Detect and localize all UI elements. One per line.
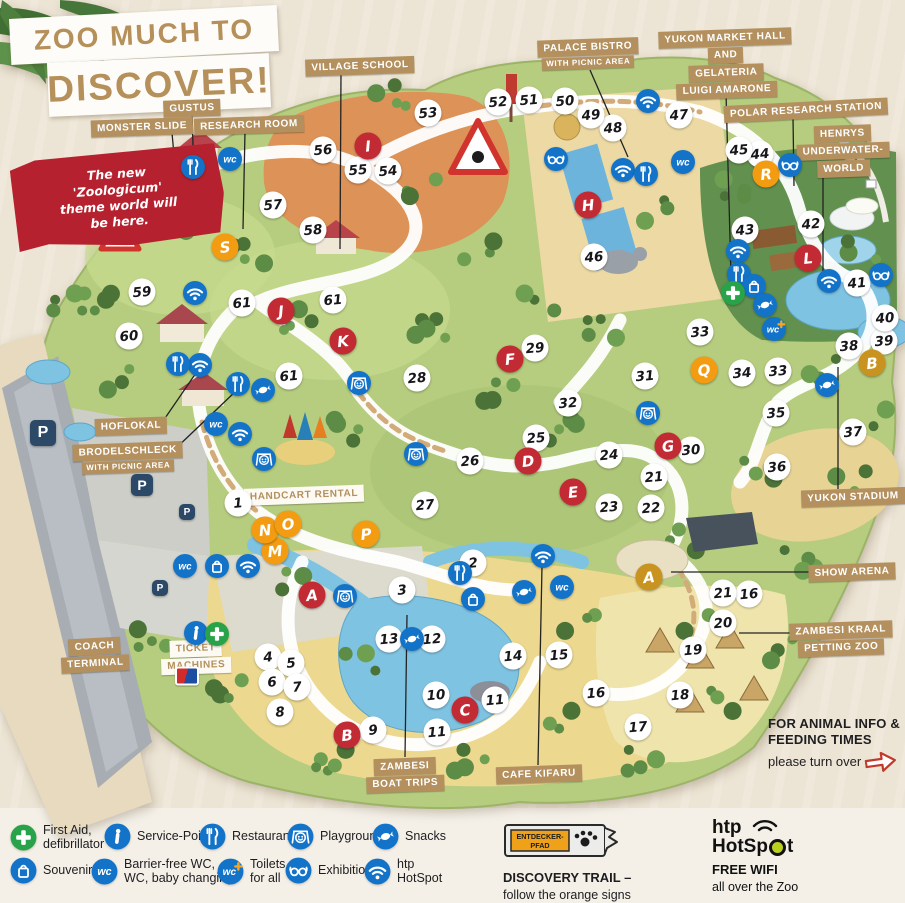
- discovery-trail-subtitle: follow the orange signs: [503, 888, 653, 903]
- hotspot-subtitle: all over the Zoo: [712, 880, 862, 895]
- wc-icon: [91, 858, 118, 885]
- wifi-icon: [364, 858, 391, 885]
- map-label-line: AND: [708, 46, 744, 64]
- map-label-line: GUSTUS: [163, 99, 221, 117]
- title-banner-line2: DISCOVER!: [47, 53, 271, 117]
- legend-item-label: Toiletsfor all: [250, 857, 285, 886]
- legend-item-wc-plus: Toiletsfor all: [217, 857, 285, 886]
- first-aid-icon: [10, 824, 37, 851]
- wifi-arcs-icon: [750, 818, 780, 834]
- map-label-line: UNDERWATER-: [796, 141, 889, 161]
- map-label-show-arena: SHOW ARENA: [808, 561, 896, 583]
- legend-item-label: htpHotSpot: [397, 857, 442, 886]
- map-label-line: COACH: [68, 637, 120, 656]
- map-label-line: YUKON STADIUM: [801, 487, 905, 507]
- map-label-line: PETTING ZOO: [798, 638, 885, 658]
- map-label-line: CAFE KIFARU: [496, 764, 582, 783]
- map-label-line: WITH PICNIC AREA: [542, 55, 634, 71]
- map-label-line: TERMINAL: [61, 654, 130, 674]
- map-label-ticket-machines: TICKETMACHINES: [160, 638, 231, 676]
- legend-item-playground: Playground: [287, 823, 383, 850]
- service-icon: [104, 823, 131, 850]
- map-label-henrys: HENRYSUNDERWATER-WORLD: [796, 123, 890, 180]
- legend-item-label: Restaurant: [232, 829, 293, 843]
- map-label-line: TICKET: [170, 639, 222, 657]
- exhibition-icon: [285, 857, 312, 884]
- map-label-palace-bistro: PALACE BISTROWITH PICNIC AREA: [537, 36, 639, 72]
- legend-item-snacks: Snacks: [372, 823, 446, 850]
- animal-info-line1: FOR ANIMAL INFO &: [768, 716, 903, 732]
- map-label-line: WITH PICNIC AREA: [82, 459, 174, 475]
- discovery-trail-sign: ENTDECKER- PFAD: [503, 820, 621, 860]
- map-label-village-school: VILLAGE SCHOOL: [305, 55, 415, 77]
- hotspot-brand-top: htp: [712, 818, 742, 837]
- map-label-zambesi-kraal: ZAMBESI KRAALPETTING ZOO: [789, 619, 893, 659]
- map-label-monster-slide: MONSTER SLIDE: [91, 116, 194, 138]
- legend-item-service: Service-Point: [104, 823, 211, 850]
- ribbon-line: be here.: [90, 212, 150, 232]
- map-label-brodelschleck: BRODELSCHLECKWITH PICNIC AREA: [72, 440, 183, 476]
- map-label-zambesi-boat-trips: ZAMBESIBOAT TRIPS: [365, 756, 444, 795]
- map-label-line: ZAMBESI: [374, 757, 436, 776]
- legend-item-label: First Aid,defibrillator: [43, 823, 104, 852]
- map-label-line: BOAT TRIPS: [366, 774, 444, 793]
- turn-over-text: please turn over: [768, 754, 861, 770]
- legend-item-label: Snacks: [405, 829, 446, 843]
- restaurant-icon: [199, 823, 226, 850]
- sign-text-line1: ENTDECKER-: [516, 832, 564, 841]
- map-label-line: MACHINES: [161, 656, 232, 675]
- discovery-trail-title: DISCOVERY TRAIL –: [503, 870, 653, 886]
- map-label-line: HANDCART RENTAL: [244, 485, 365, 506]
- map-label-hoflokal: HOFLOKAL: [95, 415, 168, 436]
- map-label-line: VILLAGE SCHOOL: [305, 56, 415, 76]
- snacks-icon: [372, 823, 399, 850]
- discovery-trail-legend: ENTDECKER- PFAD DISCOVERY TRAIL – follow…: [503, 820, 653, 903]
- map-label-line: MONSTER SLIDE: [91, 117, 194, 137]
- legend-item-wifi: htpHotSpot: [364, 857, 442, 886]
- page-title: ZOO MUCH TO: [33, 13, 255, 57]
- legend-item-wc: Barrier-free WC,WC, baby changing: [91, 857, 233, 886]
- legend-item-souvenirs: Souvenirs: [10, 857, 99, 884]
- zoo-map-page: wc wc: [0, 0, 905, 903]
- legend-item-restaurant: Restaurant: [199, 823, 293, 850]
- hotspot-brand-bottom: HotSpt: [712, 837, 862, 856]
- hotspot-o-dot: [769, 839, 786, 856]
- map-label-line: GELATERIA: [689, 63, 764, 82]
- map-label-line: HENRYS: [814, 124, 871, 142]
- map-label-yukon-stadium: YUKON STADIUM: [801, 486, 905, 508]
- turn-over-arrow-icon: [864, 748, 899, 776]
- map-label-line: SHOW ARENA: [808, 562, 896, 582]
- hotspot-legend: htp HotSpt FREE WIFI all over the Zoo: [712, 818, 862, 895]
- map-label-line: HOFLOKAL: [95, 416, 168, 435]
- map-label-research-room: RESEARCH ROOM: [194, 114, 304, 136]
- playground-icon: [287, 823, 314, 850]
- page-title-emphasis: DISCOVER!: [46, 59, 271, 111]
- map-label-cafe-kifaru: CAFE KIFARU: [496, 763, 582, 784]
- animal-info-line2: FEEDING TIMES: [768, 732, 903, 748]
- map-label-line: LUIGI AMARONE: [676, 80, 777, 100]
- hotspot-title: FREE WIFI: [712, 862, 862, 878]
- map-label-line: WORLD: [817, 159, 870, 177]
- legend-item-exhibition: Exhibition: [285, 857, 372, 884]
- wc-plus-icon: [217, 858, 244, 885]
- map-label-coach-terminal: COACHTERMINAL: [60, 635, 130, 675]
- animal-info-note: FOR ANIMAL INFO & FEEDING TIMES please t…: [768, 716, 903, 774]
- map-label-yukon-market: YUKON MARKET HALLANDGELATERIALUIGI AMARO…: [658, 26, 794, 102]
- souvenirs-icon: [10, 857, 37, 884]
- legend-item-first-aid: First Aid,defibrillator: [10, 823, 104, 852]
- map-label-line: RESEARCH ROOM: [194, 115, 304, 135]
- map-label-line: YUKON MARKET HALL: [658, 27, 792, 48]
- sign-text-line2: PFAD: [530, 841, 549, 850]
